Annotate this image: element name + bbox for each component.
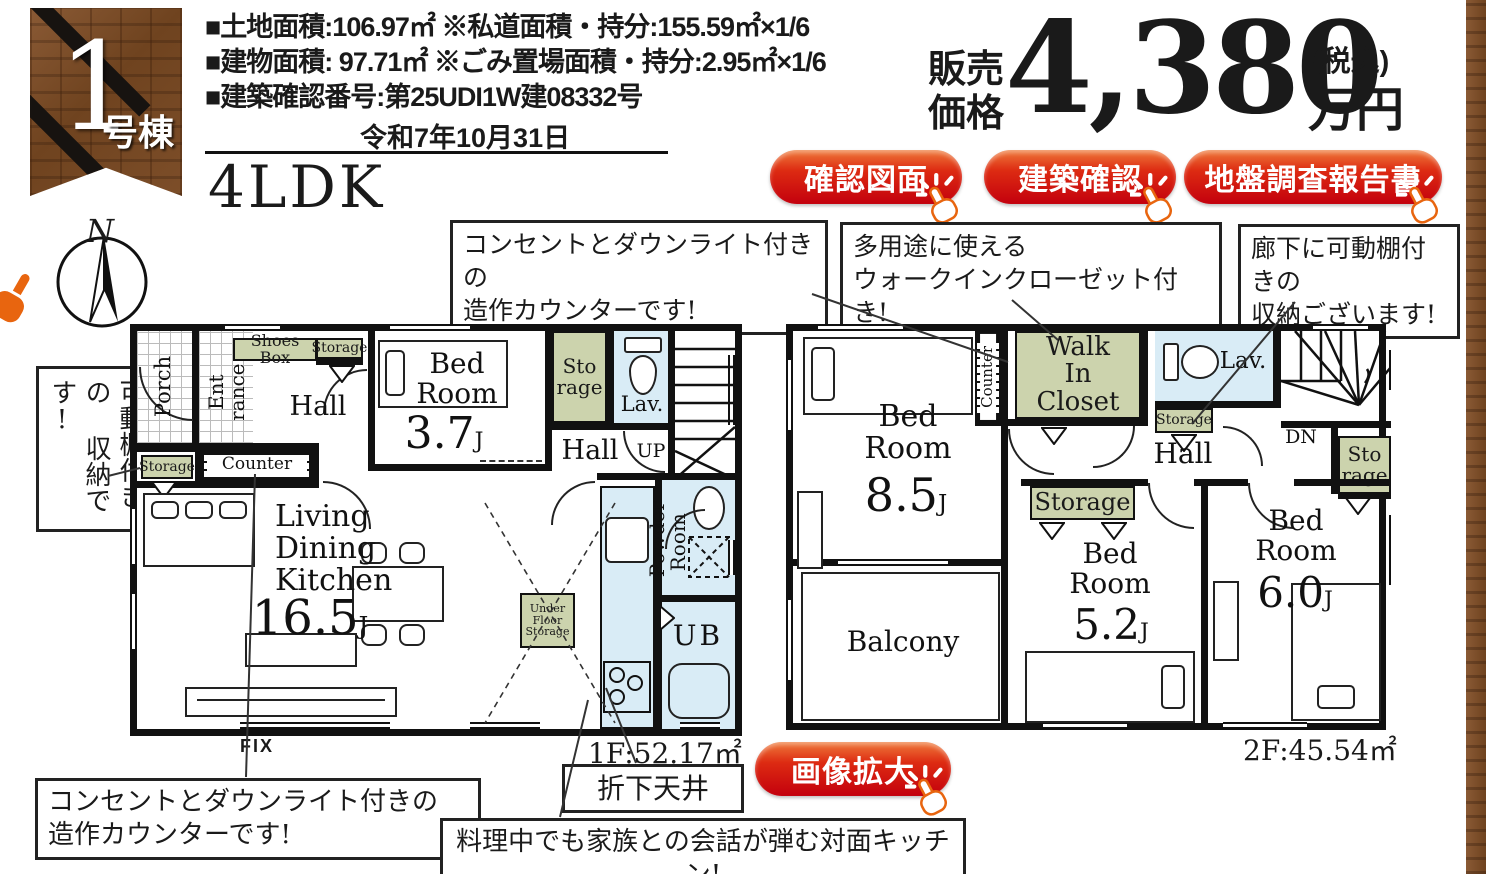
fix-window-label: FIX — [240, 736, 274, 757]
cabinet-icon — [185, 687, 397, 717]
price-label: 販売 価格 — [928, 48, 1004, 136]
sofa-cushion — [185, 501, 213, 519]
wall — [662, 595, 735, 602]
image-zoom-label: 画像拡大 — [791, 747, 915, 791]
sofa-cushion — [151, 501, 179, 519]
bedroom60-size-value: 6.0 — [1257, 568, 1324, 617]
wall — [137, 443, 319, 452]
bedroom-size-unit: J — [475, 429, 484, 454]
floor2-area-label: 2F:45.54㎡ — [1243, 729, 1397, 769]
unit-number-suffix: 号棟 — [102, 104, 174, 156]
bedroom52-name: Bed Room — [1055, 539, 1165, 598]
window — [1043, 722, 1127, 729]
window — [225, 324, 280, 331]
shelf-icon — [797, 491, 823, 569]
confirmation-date: 令和7年10月31日 — [360, 116, 570, 155]
bedroom60-size-unit: J — [1324, 588, 1333, 613]
wall — [1155, 401, 1281, 408]
wood-border-strip — [1466, 0, 1486, 874]
folding-door-mark — [1039, 522, 1065, 540]
storage-label: Storage — [316, 338, 363, 359]
bathtub-icon — [668, 663, 730, 719]
confirmation-number-line: ■建築確認番号:第25UDI1W建08332号 — [205, 80, 895, 115]
bedroom52-size-value: 5.2 — [1073, 600, 1140, 649]
ground-survey-report-button[interactable]: 地盤調査報告書 — [1184, 150, 1442, 204]
wall — [1001, 331, 1008, 426]
wall — [1001, 426, 1008, 729]
window-fix — [240, 722, 390, 729]
porch-label: Porch — [152, 357, 174, 417]
bedroom52-size-unit: J — [1140, 620, 1149, 645]
flyer-page: 1 号棟 ■土地面積:106.97㎡ ※私道面積・持分:155.59㎡×1/6 … — [0, 0, 1486, 874]
storage-label: Sto rage — [552, 331, 607, 423]
stairs-down — [1281, 331, 1391, 421]
wall — [1141, 331, 1148, 426]
pillow-icon — [1317, 685, 1355, 709]
toilet-tank-icon — [1163, 343, 1179, 381]
wall — [368, 331, 375, 471]
bedroom-name: Bed Room — [402, 349, 512, 408]
confirmation-drawing-button[interactable]: 確認図面 — [770, 150, 962, 204]
building-confirmation-label: 建築確認 — [1018, 155, 1142, 199]
shelf-icon — [1213, 581, 1239, 661]
click-hand-icon — [905, 764, 959, 826]
bedroom85-size-value: 8.5 — [865, 468, 938, 522]
door-arc — [1148, 483, 1194, 529]
callout-counter-2f: コンセントとダウンライト付きの 造作カウンターです! — [450, 220, 828, 335]
window — [818, 324, 903, 331]
hall2-label: Hall — [555, 437, 625, 466]
bedroom60-size: 6.0J — [1245, 571, 1345, 616]
building-area-line: ■建物面積: 97.71㎡ ※ごみ置場面積・持分:2.95㎡×1/6 — [205, 45, 895, 80]
dn-label: DN — [1279, 427, 1323, 447]
window — [680, 722, 720, 729]
window — [1313, 324, 1368, 331]
callout-dropped-ceiling: 折下天井 — [562, 764, 744, 813]
door-arc — [1093, 426, 1135, 468]
bedroom-size: 3.7J — [399, 411, 489, 458]
wall — [1201, 479, 1208, 729]
folding-door-mark — [329, 365, 355, 383]
building-confirmation-button[interactable]: 建築確認 — [984, 150, 1176, 204]
bedroom85-size-unit: J — [938, 491, 947, 517]
chair-icon — [399, 624, 425, 646]
shoes-box-label: Shoes Box — [233, 338, 317, 361]
floor2-plan: Walk In Closet Storage Sto rage Storage — [786, 324, 1386, 730]
bedroom85-name: Bed Room — [848, 401, 968, 465]
bedroom-size-value: 3.7 — [405, 408, 475, 459]
bedroom60-name: Bed Room — [1241, 506, 1351, 565]
click-hand-icon — [0, 262, 32, 354]
entrance-label: Ent rance — [206, 360, 248, 424]
window — [130, 509, 137, 564]
wall — [1273, 331, 1281, 408]
price-unit: 万円 — [1308, 70, 1404, 140]
ldk-size: 16.5J — [245, 593, 375, 644]
powder-room-label: Powder Room — [647, 507, 689, 577]
floor1-plan: Shoes Box Storage Storage Sto rage Under… — [130, 324, 742, 736]
ldk-size-unit: J — [359, 612, 369, 640]
wall — [316, 358, 363, 365]
unit-number-badge: 1 号棟 — [30, 8, 182, 196]
callout-kitchen: 料理中でも家族との会話が弾む対面キッチン! — [440, 818, 966, 874]
callout-walk-in-closet: 多用途に使える ウォークインクローゼット付き! — [840, 222, 1222, 337]
callout-counter-1f: コンセントとダウンライト付きの 造作カウンターです! — [35, 778, 481, 860]
wall — [545, 331, 552, 471]
window — [1223, 722, 1307, 729]
ldk-size-value: 16.5 — [252, 590, 359, 646]
door-arc — [551, 481, 595, 525]
balcony-label: Balcony — [833, 627, 973, 657]
storage-small-label: Storage — [1155, 408, 1213, 433]
storage-mid-label: Storage — [1030, 486, 1135, 520]
wall — [1021, 479, 1148, 486]
lav-label-2f: Lav. — [1213, 349, 1273, 373]
door-arc — [1223, 426, 1263, 466]
window — [390, 324, 470, 331]
bedroom85-size: 8.5J — [851, 471, 961, 520]
counter-label-2f: Counter — [980, 334, 996, 420]
counter-label: Counter — [207, 455, 307, 473]
window — [838, 559, 948, 566]
callout-hall-storage: 廊下に可動棚付きの 収納ございます! — [1238, 224, 1460, 339]
toilet-tank-icon — [624, 337, 662, 353]
kitchen-dashed-marks — [477, 491, 657, 729]
folding-door-mark — [1041, 427, 1067, 445]
pillow-icon — [811, 347, 835, 401]
dashed-opening — [480, 460, 542, 462]
compass-north-label: N — [86, 212, 114, 250]
storage-label: Storage — [141, 455, 193, 479]
land-area-line: ■土地面積:106.97㎡ ※私道面積・持分:155.59㎡×1/6 — [205, 10, 895, 45]
layout-type: 4LDK — [208, 153, 385, 221]
ground-survey-report-label: 地盤調査報告書 — [1205, 155, 1422, 199]
lav-label: Lav. — [617, 393, 667, 415]
cabinet-line — [197, 699, 385, 701]
wall — [552, 423, 675, 430]
hall-label: Hall — [283, 393, 353, 422]
wall — [1294, 479, 1391, 486]
window — [1384, 515, 1391, 585]
ub-label: UB — [665, 621, 731, 651]
stairs-up — [675, 331, 735, 479]
image-zoom-button[interactable]: 画像拡大 — [755, 742, 951, 796]
pillow-icon — [1161, 665, 1185, 709]
wall — [607, 331, 614, 430]
property-info: ■土地面積:106.97㎡ ※私道面積・持分:155.59㎡×1/6 ■建物面積… — [205, 10, 895, 115]
bedroom52-size: 5.2J — [1061, 603, 1161, 648]
window — [130, 594, 137, 649]
wall — [1008, 419, 1148, 426]
wall — [192, 331, 199, 449]
window — [786, 360, 793, 430]
walk-in-closet-label: Walk In Closet — [1015, 331, 1141, 419]
up-label: UP — [629, 441, 673, 461]
window — [786, 600, 793, 680]
ldk-name: Living Dining Kitchen — [237, 501, 475, 596]
hall-label-2f: Hall — [1143, 439, 1223, 469]
wall — [368, 464, 552, 471]
confirmation-drawing-label: 確認図面 — [804, 155, 928, 199]
